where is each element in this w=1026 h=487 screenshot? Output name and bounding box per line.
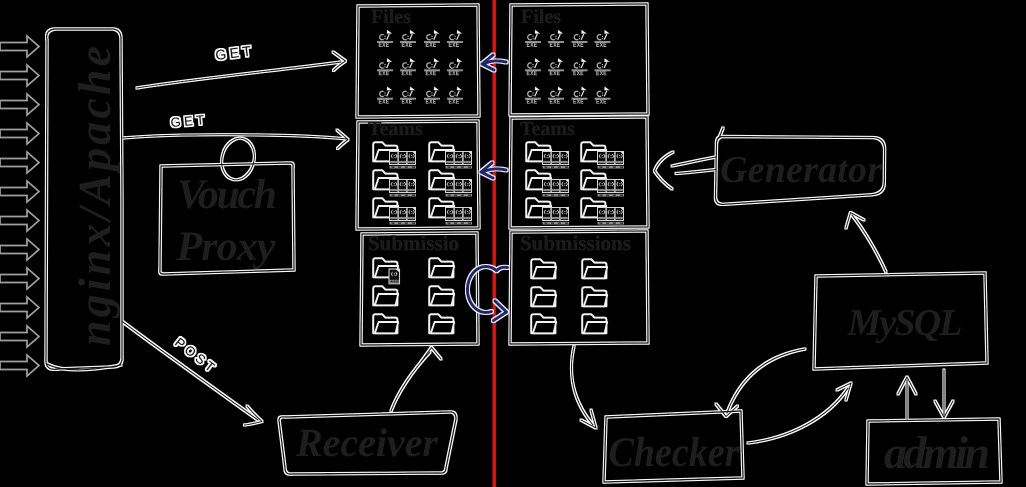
svg-text:Vouch: Vouch xyxy=(177,172,277,218)
svg-text:Submissio: Submissio xyxy=(368,231,459,255)
svg-text:Generator: Generator xyxy=(720,149,883,191)
svg-text:GET: GET xyxy=(170,112,208,130)
svg-text:Checker: Checker xyxy=(609,430,741,476)
svg-text:Receiver: Receiver xyxy=(295,420,438,465)
svg-text:Files: Files xyxy=(371,6,411,28)
svg-text:MySQL: MySQL xyxy=(847,302,963,344)
svg-text:POST: POST xyxy=(172,335,220,377)
svg-text:Teams: Teams xyxy=(520,118,575,140)
svg-text:Teams: Teams xyxy=(368,118,423,140)
svg-text:Submissions: Submissions xyxy=(520,231,631,255)
svg-text:admin: admin xyxy=(884,427,990,478)
svg-text:Proxy: Proxy xyxy=(176,224,276,270)
svg-text:nginx/Apache: nginx/Apache xyxy=(69,46,120,346)
svg-text:GET: GET xyxy=(214,42,255,63)
svg-text:Files: Files xyxy=(521,6,561,28)
